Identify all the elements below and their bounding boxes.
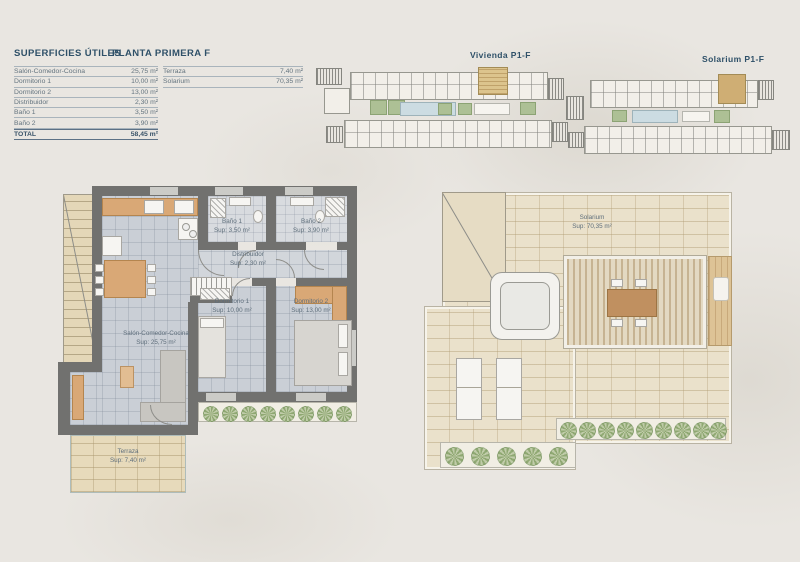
fridge — [102, 236, 122, 256]
room-area: 7,40 m² — [280, 68, 303, 75]
garden-patch — [438, 103, 452, 115]
chair — [95, 264, 104, 272]
chair — [95, 276, 104, 284]
sun-lounger — [456, 358, 482, 420]
chair — [147, 276, 156, 284]
lounger-fold — [497, 387, 521, 388]
bedroom2-label: Dormitorio 2Sup: 13,00 m² — [274, 298, 348, 315]
planter — [198, 402, 357, 422]
sink — [290, 197, 314, 206]
table-row: Baño 23,90 m² — [14, 118, 158, 128]
plant — [298, 406, 314, 422]
wall — [198, 242, 238, 250]
plant — [445, 447, 464, 466]
deck — [474, 103, 510, 115]
sink — [229, 197, 251, 206]
floorplan-brochure-page: SUPERFICIES ÚTILES PLANTA PRIMERA F Saló… — [0, 0, 800, 562]
room-label: Dormitorio 1 — [14, 78, 51, 85]
window — [296, 393, 326, 401]
room-label: Dormitorio 2 — [14, 89, 51, 96]
total-area: 58,45 m² — [131, 131, 158, 138]
chair — [147, 264, 156, 272]
garden-patch — [370, 100, 387, 115]
room-label: Baño 2 — [14, 120, 36, 127]
solarium-keyplan-label: Solarium P1-F — [702, 54, 764, 64]
total-label: TOTAL — [14, 131, 36, 138]
wall — [266, 242, 306, 250]
cooktop — [178, 218, 198, 240]
room-name: Dormitorio 2 — [274, 298, 348, 307]
room-label: Salón-Comedor-Cocina — [14, 68, 85, 75]
kitchen-appliance — [144, 200, 164, 214]
room-area: Sup: 3,50 m² — [198, 227, 266, 236]
plant — [222, 406, 238, 422]
chair — [635, 319, 647, 327]
building-wing-bottom — [344, 120, 552, 148]
pool — [632, 110, 678, 123]
wall — [58, 425, 198, 435]
terrace-label: TerrazaSup: 7,40 m² — [70, 448, 186, 465]
room-area: Sup: 7,40 m² — [70, 457, 186, 466]
table-row: Salón-Comedor-Cocina25,75 m² — [14, 66, 158, 77]
chair — [611, 319, 623, 327]
room-area: Sup: 10,00 m² — [198, 307, 266, 316]
room-area: 3,90 m² — [135, 120, 158, 127]
garden-patch — [714, 110, 730, 123]
room-name: Salón-Comedor-Cocina — [112, 330, 200, 339]
room-area: 70,35 m² — [276, 78, 303, 85]
plant — [317, 406, 333, 422]
solarium-keyplan — [566, 74, 794, 156]
table-row: Terraza7,40 m² — [163, 66, 303, 77]
chair — [611, 279, 623, 287]
highlighted-unit — [478, 67, 508, 95]
plant — [549, 447, 568, 466]
jacuzzi — [490, 272, 560, 340]
room-area: Sup: 70,35 m² — [532, 223, 652, 232]
hallway-label: DistribuidorSup: 2,30 m² — [188, 251, 308, 268]
outdoor-table — [607, 289, 657, 317]
solarium-label: SolariumSup: 70,35 m² — [532, 214, 652, 231]
room-area: 2,30 m² — [135, 99, 158, 106]
room-label: Terraza — [163, 68, 186, 75]
garden-patch — [520, 102, 536, 115]
room-area: 10,00 m² — [131, 78, 158, 85]
plant — [260, 406, 276, 422]
chair — [147, 288, 156, 296]
vivienda-keyplan — [312, 64, 562, 150]
bathroom2-label: Baño 2Sup: 3,90 m² — [274, 218, 348, 235]
table-total-row: TOTAL58,45 m² — [14, 129, 158, 140]
stair-block — [758, 80, 774, 100]
chair — [95, 288, 104, 296]
room-name: Distribuidor — [188, 251, 308, 260]
stair-block — [548, 78, 564, 100]
solarium-plan: SolariumSup: 70,35 m² — [424, 190, 736, 472]
stair-block — [566, 96, 584, 120]
stair-block — [772, 130, 790, 150]
room-area: 25,75 m² — [131, 68, 158, 75]
plant — [655, 422, 672, 439]
bathroom1-label: Baño 1Sup: 3,50 m² — [198, 218, 266, 235]
table-row: Baño 13,50 m² — [14, 108, 158, 118]
pillow — [338, 352, 348, 376]
room-label: Distribuidor — [14, 99, 48, 106]
coffee-table — [120, 366, 134, 388]
stair-block — [326, 126, 343, 143]
door-arc — [232, 278, 250, 296]
plant — [471, 447, 490, 466]
surfaces-table: Salón-Comedor-Cocina25,75 m² Dormitorio … — [14, 66, 158, 140]
room-label: Baño 1 — [14, 109, 36, 116]
room-name: Dormitorio 1 — [198, 298, 266, 307]
planter — [556, 418, 726, 440]
room-area: 3,50 m² — [135, 109, 158, 116]
building-wing-top — [350, 72, 548, 100]
table-row: Solarium70,35 m² — [163, 77, 303, 87]
plant — [560, 422, 577, 439]
building-wing-bottom — [584, 126, 772, 154]
wall — [188, 302, 198, 392]
wall — [266, 278, 276, 392]
wall — [252, 278, 266, 286]
plant — [579, 422, 596, 439]
dining-table — [104, 260, 146, 298]
plant — [203, 406, 219, 422]
garden-patch — [458, 103, 472, 115]
apartment-plan: Baño 1Sup: 3,50 m² Baño 2Sup: 3,90 m² Di… — [56, 180, 422, 495]
deck-mat — [713, 277, 729, 301]
shower — [210, 198, 226, 218]
plant — [241, 406, 257, 422]
room-name: Baño 1 — [198, 218, 266, 227]
wall — [58, 362, 102, 372]
room-area: Sup: 2,30 m² — [188, 260, 308, 269]
chair — [635, 279, 647, 287]
window — [206, 393, 236, 401]
plant — [617, 422, 634, 439]
room-name: Solarium — [532, 214, 652, 223]
pillow — [338, 324, 348, 348]
plant — [336, 406, 352, 422]
window — [285, 187, 313, 195]
room-area: Sup: 3,90 m² — [274, 227, 348, 236]
bedroom1-label: Dormitorio 1Sup: 10,00 m² — [198, 298, 266, 315]
table-row: Dormitorio 213,00 m² — [14, 88, 158, 98]
pillow — [200, 318, 224, 328]
wall — [337, 242, 357, 250]
wall — [188, 392, 198, 425]
wall — [256, 242, 266, 250]
plant — [674, 422, 691, 439]
vivienda-keyplan-label: Vivienda P1-F — [470, 50, 531, 60]
wall — [296, 278, 347, 286]
plant — [523, 447, 542, 466]
living-label: Salón-Comedor-CocinaSup: 25,75 m² — [112, 330, 200, 347]
table-row: Dormitorio 110,00 m² — [14, 77, 158, 87]
floor-title: PLANTA PRIMERA F — [112, 48, 210, 59]
exterior-table: Terraza7,40 m² Solarium70,35 m² — [163, 66, 303, 88]
stair-block — [316, 68, 342, 85]
lounger-fold — [457, 387, 481, 388]
garden-patch — [612, 110, 627, 122]
burner — [189, 230, 197, 238]
deck — [682, 111, 710, 122]
plant — [279, 406, 295, 422]
wall — [92, 196, 102, 372]
plant — [497, 447, 516, 466]
room-name: Baño 2 — [274, 218, 348, 227]
plant — [636, 422, 653, 439]
sun-lounger — [496, 358, 522, 420]
stair-block — [568, 132, 584, 148]
surfaces-title: SUPERFICIES ÚTILES — [14, 48, 121, 59]
room-name: Terraza — [70, 448, 186, 457]
plant — [693, 422, 710, 439]
plant — [710, 422, 727, 439]
room-area: Sup: 25,75 m² — [112, 339, 200, 348]
tv-cabinet — [72, 375, 84, 420]
kitchen-appliance — [174, 200, 194, 214]
table-row: Distribuidor2,30 m² — [14, 98, 158, 108]
pergola — [564, 256, 706, 348]
planter — [440, 442, 576, 468]
plant — [598, 422, 615, 439]
window — [150, 187, 178, 195]
jacuzzi-basin — [500, 282, 550, 330]
burner — [182, 223, 190, 231]
highlighted-unit — [718, 74, 746, 104]
room-label: Solarium — [163, 78, 190, 85]
wood-deck — [708, 256, 732, 346]
end-unit — [324, 88, 350, 114]
room-area: 13,00 m² — [131, 89, 158, 96]
shower — [325, 197, 345, 217]
window — [215, 187, 243, 195]
room-area: Sup: 13,00 m² — [274, 307, 348, 316]
